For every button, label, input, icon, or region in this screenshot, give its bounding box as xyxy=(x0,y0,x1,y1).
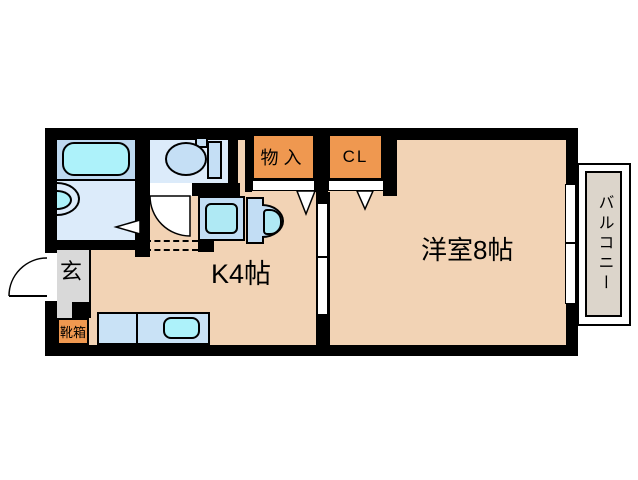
balcony-window-tick xyxy=(565,242,576,244)
shoe-box: 靴箱 xyxy=(57,318,89,345)
western-room-label: 洋室8帖 xyxy=(421,237,513,263)
balcony-window xyxy=(565,184,576,304)
toilet-doorway xyxy=(150,183,192,196)
entrance-label: 玄 xyxy=(60,261,82,283)
storage-closet: 物入 xyxy=(252,134,315,180)
balcony-label: バルコニー xyxy=(592,194,616,294)
wall-below-toilet xyxy=(192,183,240,196)
wall-closet-right xyxy=(383,134,397,196)
storage-door xyxy=(252,180,315,191)
balcony-area: バルコニー xyxy=(585,171,622,317)
wall-left-lower xyxy=(45,301,57,356)
storage-label: 物入 xyxy=(261,144,307,170)
kitchen-label: K4帖 xyxy=(211,261,271,288)
toilet-tank xyxy=(207,141,222,179)
washing-machine-pan-inner xyxy=(205,203,238,234)
closet: CL xyxy=(328,134,383,180)
wall-storage-closet xyxy=(315,134,328,192)
sliding-door-tick xyxy=(317,256,328,258)
toilet-bowl xyxy=(165,142,207,176)
entrance-door-arc xyxy=(9,258,47,296)
kitchen-counter-divider xyxy=(136,312,138,345)
wall-left-upper xyxy=(45,128,57,253)
wall-bathroom-bottom xyxy=(45,240,150,250)
wall-entrance-stub xyxy=(72,302,89,318)
wall-entrance-edge xyxy=(89,250,91,318)
shoe-box-label: 靴箱 xyxy=(60,322,86,341)
closet-label: CL xyxy=(343,147,369,167)
closet-door xyxy=(328,180,384,191)
kitchen-sink xyxy=(163,317,200,339)
sliding-door xyxy=(317,203,328,315)
step-boundary-dash xyxy=(145,240,198,242)
wall-washer-stub xyxy=(198,241,214,252)
bathtub xyxy=(62,142,130,176)
wall-bottom xyxy=(45,345,578,356)
wall-storage-left xyxy=(245,134,252,192)
floor-plan: バルコニー 物入 CL xyxy=(0,0,638,480)
step-boundary-dash xyxy=(145,249,198,251)
